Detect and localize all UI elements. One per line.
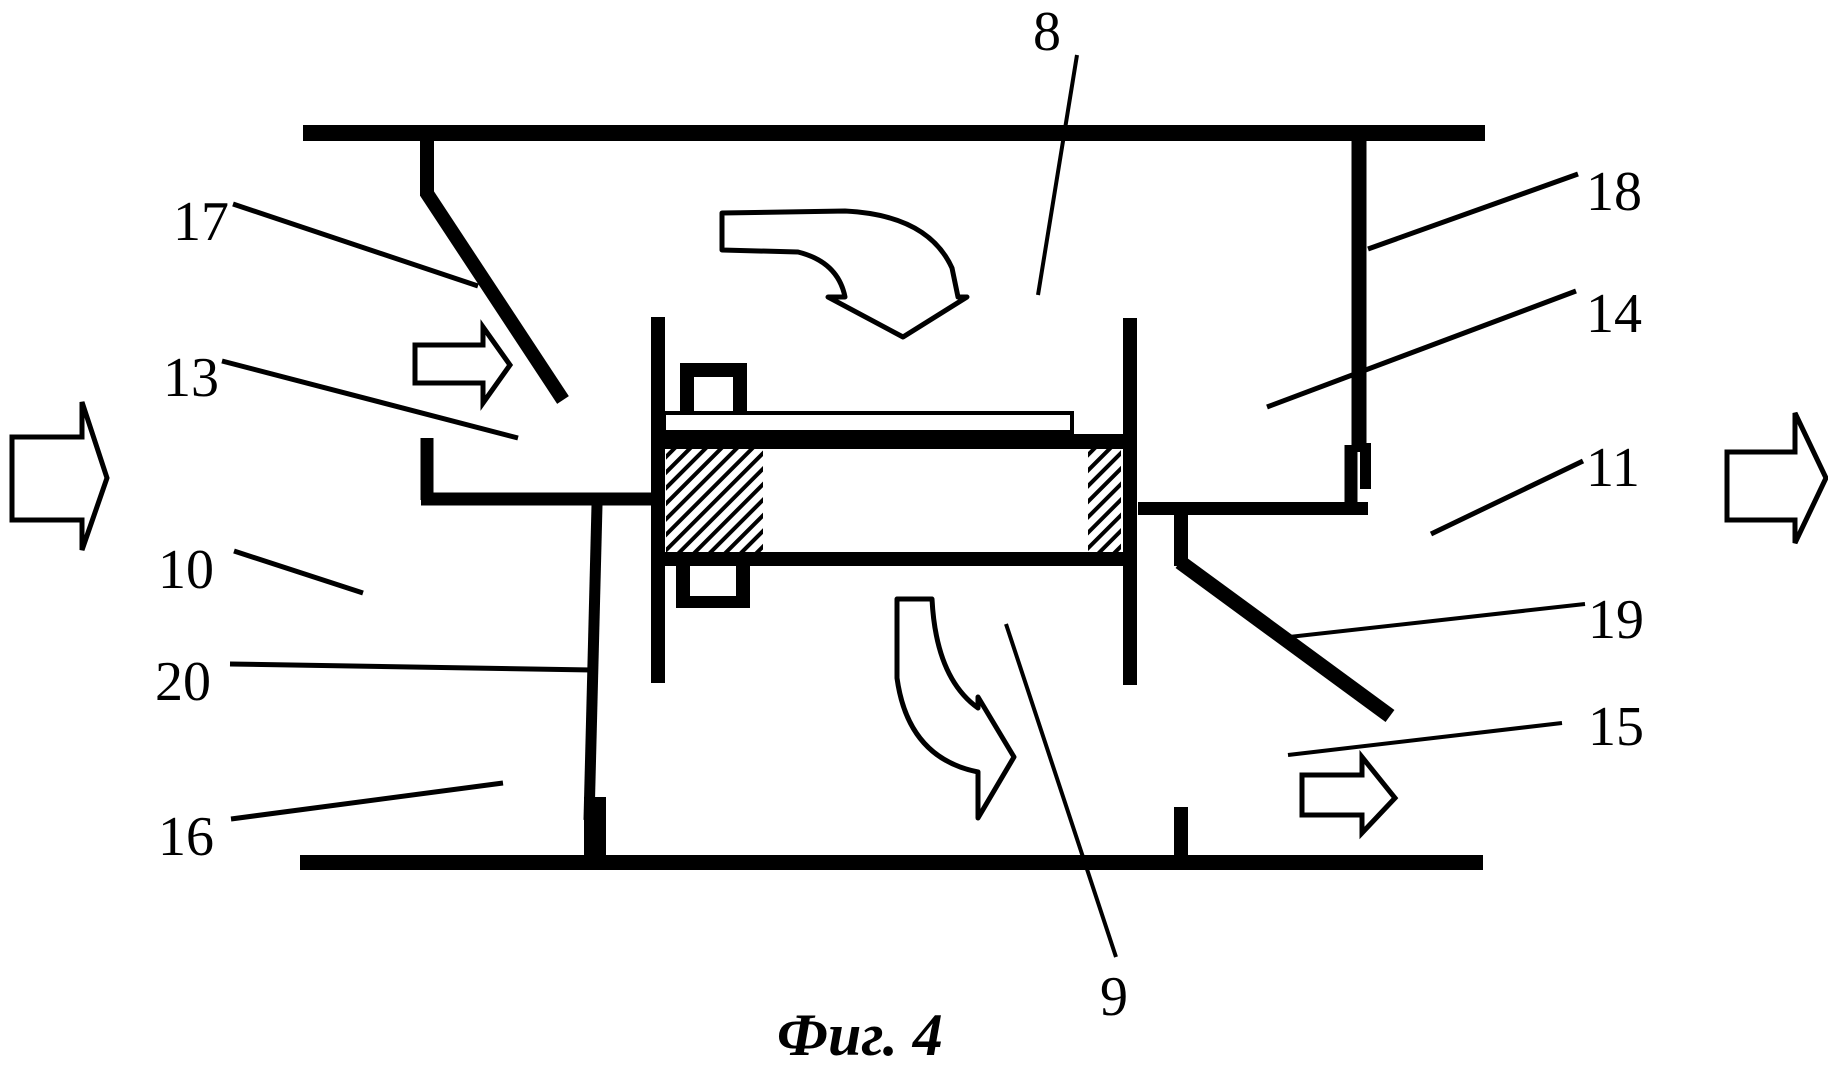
part-label-9: 9 xyxy=(1100,966,1128,1028)
outlet-flow-arrow-right xyxy=(1727,413,1826,543)
part-label-14: 14 xyxy=(1586,283,1642,345)
assembly-top-clip xyxy=(680,363,747,414)
assembly-left-plate xyxy=(651,317,665,683)
diagram-canvas: 8 17 13 10 20 16 18 14 11 19 15 9 Фиг. 4 xyxy=(0,0,1828,1067)
leader-9 xyxy=(1006,624,1116,957)
part-label-18: 18 xyxy=(1586,161,1642,223)
assembly-hatch-right xyxy=(1088,449,1121,552)
figure-page: 8 17 13 10 20 16 18 14 11 19 15 9 Фиг. 4 xyxy=(0,0,1828,1067)
part-label-16: 16 xyxy=(158,806,214,868)
leader-19 xyxy=(1280,604,1585,638)
upper-curved-flow-arrow xyxy=(722,211,967,337)
wall-18-notch-stub xyxy=(1360,443,1371,489)
part-label-8: 8 xyxy=(1033,1,1061,63)
part-label-19: 19 xyxy=(1588,589,1644,651)
top-duct-wall xyxy=(303,125,1485,141)
bottom-wall-stub xyxy=(1174,807,1188,860)
leader-15 xyxy=(1288,723,1562,755)
assembly-body-bottom-bar xyxy=(651,552,1130,566)
leader-14 xyxy=(1267,291,1576,407)
leader-18 xyxy=(1368,174,1578,249)
part-label-11: 11 xyxy=(1586,437,1640,499)
inlet-flow-arrow-left xyxy=(12,402,107,550)
part-label-13: 13 xyxy=(163,347,219,409)
part-label-17: 17 xyxy=(173,191,229,253)
assembly-body-top-bar xyxy=(651,434,1130,449)
assembly-bottom-clip xyxy=(676,566,750,608)
assembly-hatch-left xyxy=(666,449,763,552)
leader-10 xyxy=(234,551,363,593)
assembly-tray-strip xyxy=(664,413,1072,432)
bottom-duct-wall xyxy=(300,855,1483,870)
leader-11 xyxy=(1431,461,1583,534)
leader-8 xyxy=(1038,55,1077,295)
leader-20 xyxy=(230,664,592,670)
part-label-20: 20 xyxy=(155,651,211,713)
part-label-15: 15 xyxy=(1588,696,1644,758)
leader-16 xyxy=(231,783,503,819)
divider-vane-20-foot xyxy=(584,797,606,858)
lower-duct-small-arrow xyxy=(1302,757,1395,833)
divider-vane-20 xyxy=(589,505,597,820)
figure-caption: Фиг. 4 xyxy=(777,1002,943,1067)
part-label-10: 10 xyxy=(158,539,214,601)
upper-duct-small-arrow xyxy=(415,327,510,403)
right-mid-wall xyxy=(1138,502,1368,515)
assembly-right-plate xyxy=(1123,318,1137,685)
lower-curved-flow-arrow xyxy=(897,599,1014,818)
